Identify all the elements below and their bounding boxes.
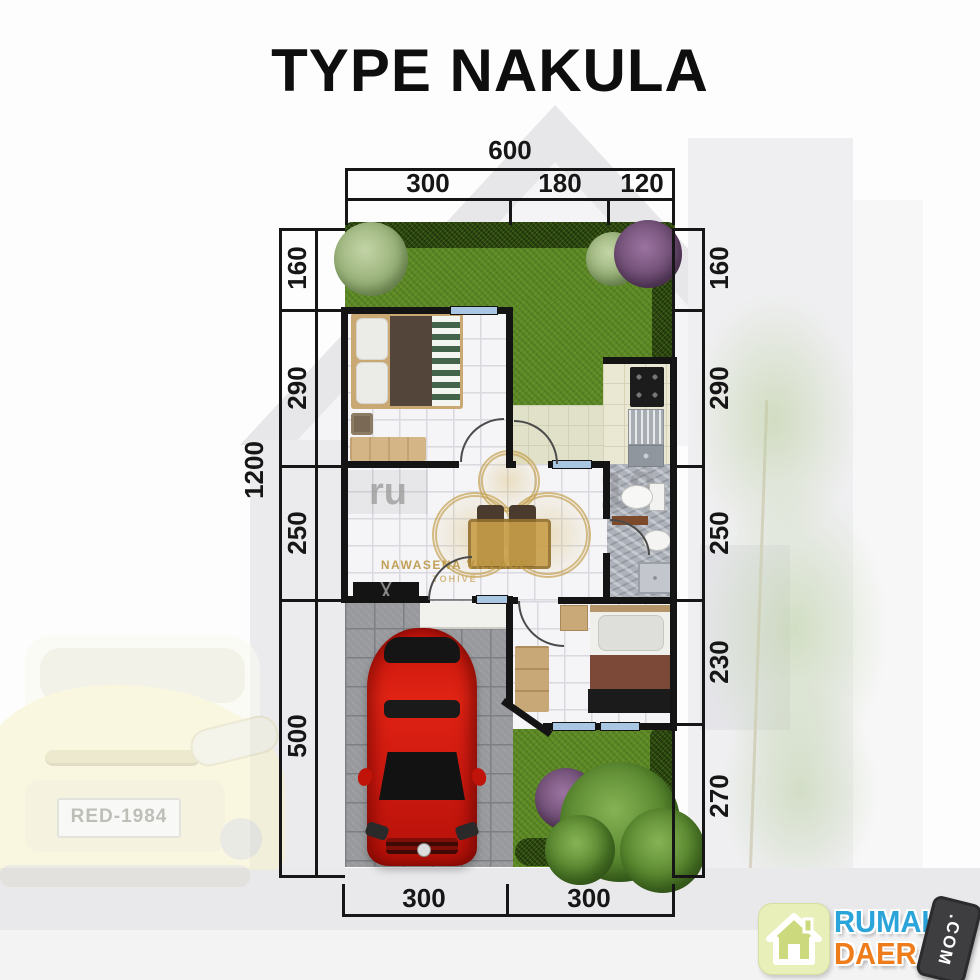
dim-tick xyxy=(672,228,705,231)
dim-left-seg4: 500 xyxy=(283,696,311,776)
dim-bottom-seg2: 300 xyxy=(549,884,629,912)
dim-right-seg3: 250 xyxy=(705,493,733,573)
floorplan-poster: RED-1984 TYPE NAKULA xyxy=(0,0,980,980)
dim-bottom-seg1: 300 xyxy=(384,884,464,912)
dim-tick xyxy=(607,198,610,225)
dim-top-seg2: 180 xyxy=(520,169,600,197)
dim-tick xyxy=(509,198,512,225)
dim-right-seg5: 270 xyxy=(705,756,733,836)
dim-line xyxy=(315,228,318,878)
dim-tick xyxy=(279,465,345,468)
dim-tick xyxy=(672,465,705,468)
dim-tick xyxy=(672,875,705,878)
logo-icon-box xyxy=(758,903,830,975)
dim-left-seg1: 160 xyxy=(283,228,311,308)
dim-tick xyxy=(506,884,509,917)
logo-com-text: .COM xyxy=(933,912,965,968)
dim-right-seg4: 230 xyxy=(705,622,733,702)
dim-tick xyxy=(279,309,345,312)
dim-top-seg3: 120 xyxy=(602,169,682,197)
house-icon xyxy=(759,904,829,974)
dim-left-seg2: 290 xyxy=(283,348,311,428)
dim-line xyxy=(672,228,675,878)
dim-left-seg3: 250 xyxy=(283,493,311,573)
dim-tick xyxy=(342,884,345,917)
dim-right-seg2: 290 xyxy=(705,348,733,428)
dim-tick xyxy=(672,723,705,726)
dim-left-total: 1200 xyxy=(240,420,268,520)
dimension-annotations: 600 300 180 120 160 290 250 500 1200 160… xyxy=(0,0,980,980)
dim-top-seg1: 300 xyxy=(388,169,468,197)
dim-tick xyxy=(672,309,705,312)
dim-tick xyxy=(279,599,345,602)
dim-top-total: 600 xyxy=(470,136,550,164)
dim-tick xyxy=(279,875,345,878)
dim-right-seg1: 160 xyxy=(705,228,733,308)
dim-tick xyxy=(345,168,348,225)
dim-tick xyxy=(672,599,705,602)
dim-tick xyxy=(672,884,675,917)
